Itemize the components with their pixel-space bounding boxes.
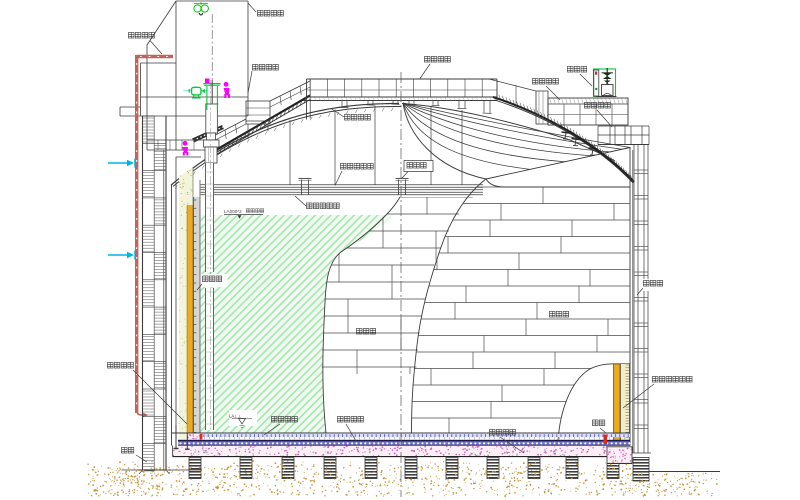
svg-text:LA⊥⊥: LA⊥⊥ — [229, 414, 242, 419]
svg-text:LA000*2: LA000*2 — [224, 209, 242, 214]
